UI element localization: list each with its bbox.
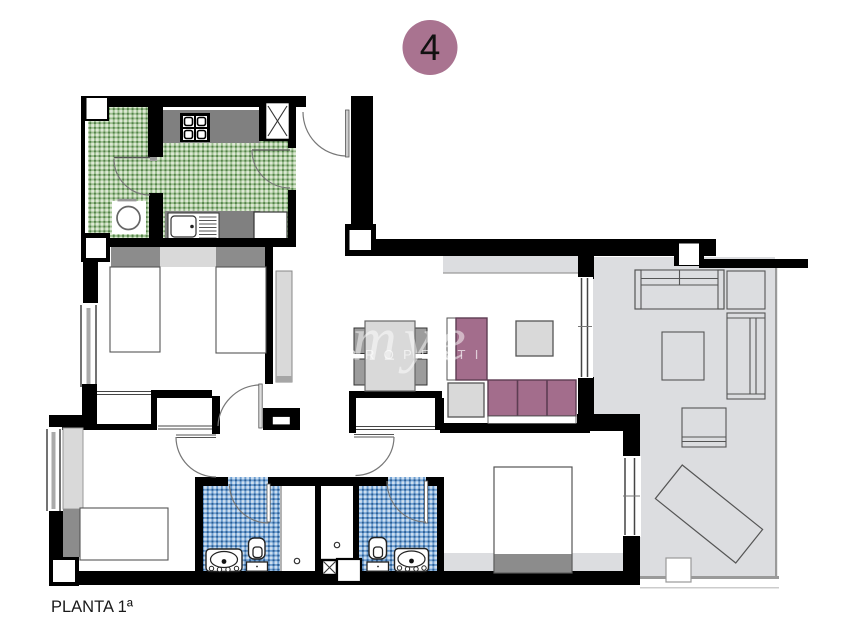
svg-text:PLANTA 1ª: PLANTA 1ª xyxy=(51,598,134,616)
svg-text:PROPERTIES: PROPERTIES xyxy=(347,347,524,362)
svg-text:4: 4 xyxy=(420,27,441,68)
svg-text:mye: mye xyxy=(352,306,473,374)
